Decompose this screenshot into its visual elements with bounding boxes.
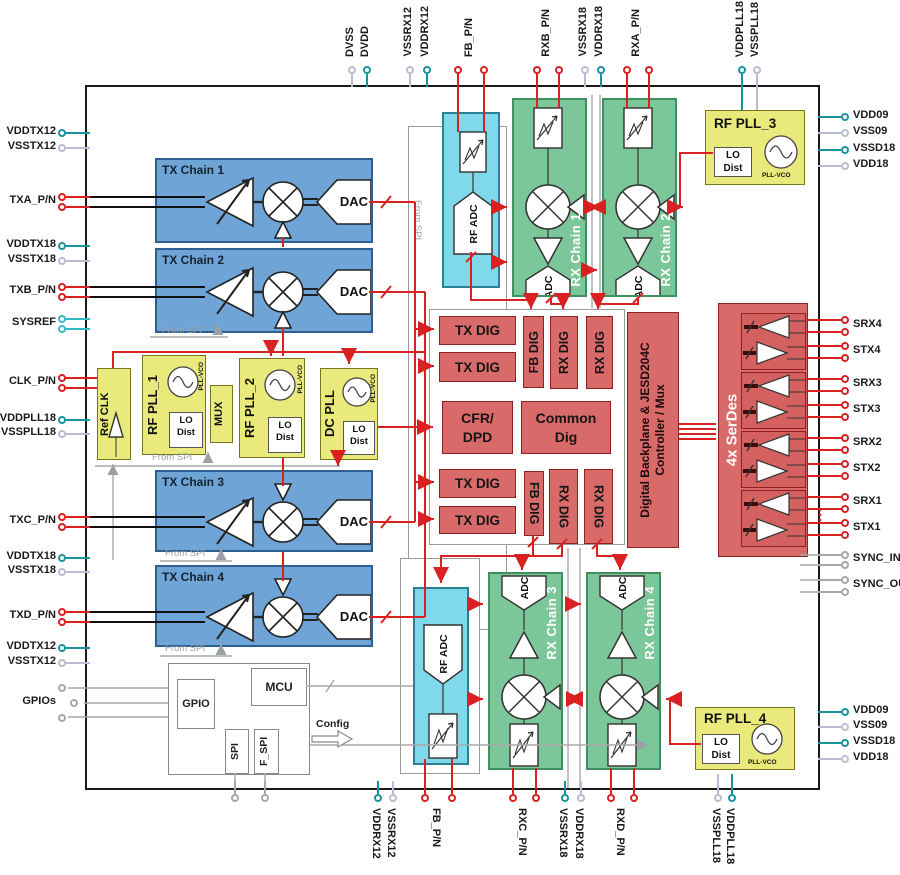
pin-wire (818, 331, 841, 333)
pin-wire (392, 781, 394, 794)
pins-layer: VDDTX12VSSTX12TXA_P/NVDDTX18VSSTX18TXB_P… (0, 0, 900, 875)
pin-wire (66, 662, 90, 664)
pin-wire (66, 286, 90, 288)
pin-circle (533, 66, 541, 74)
pin-label: STX3 (853, 403, 881, 415)
pin-circle (841, 316, 849, 324)
pin-wire (264, 781, 266, 794)
pin-label: DVSS (344, 27, 356, 57)
pin-wire (66, 132, 90, 134)
pin-wire (818, 758, 841, 760)
pin-wire (536, 74, 538, 87)
pin-wire (818, 149, 841, 151)
pin-circle (841, 129, 849, 137)
pin-circle (423, 66, 431, 74)
pin-wire (818, 742, 841, 744)
pin-circle (841, 708, 849, 716)
pin-label: VSSPLL18 (749, 2, 761, 57)
pin-wire (377, 781, 379, 794)
pin-circle (841, 446, 849, 454)
pin-circle (58, 430, 66, 438)
pin-circle (728, 794, 736, 802)
pin-wire (584, 74, 586, 87)
pin-circle (738, 66, 746, 74)
pin-circle (607, 794, 615, 802)
pin-label: STX2 (853, 462, 881, 474)
pin-wire (648, 74, 650, 87)
pin-circle (231, 794, 239, 802)
pin-circle (58, 129, 66, 137)
pin-circle (841, 113, 849, 121)
pin-wire (66, 647, 90, 649)
pin-wire (818, 319, 841, 321)
pin-circle (841, 755, 849, 763)
pin-circle (841, 460, 849, 468)
pin-circle (841, 146, 849, 154)
pin-label: VDD18 (853, 751, 888, 763)
pin-label: VDDRX18 (593, 6, 605, 57)
pin-circle (630, 794, 638, 802)
pin-wire (756, 74, 758, 87)
pin-label: VSSTX18 (8, 564, 56, 576)
pin-wire (66, 611, 90, 613)
pin-circle (841, 413, 849, 421)
pin-wire (66, 557, 90, 559)
pin-wire (818, 463, 841, 465)
pin-wire (818, 404, 841, 406)
pin-circle (58, 374, 66, 382)
pin-wire (66, 419, 90, 421)
pin-wire (818, 357, 841, 359)
pin-label: VSSPLL18 (710, 808, 722, 863)
pin-label: STX4 (853, 344, 881, 356)
pin-label: TXB_P/N (10, 284, 56, 296)
pin-wire (66, 296, 90, 298)
pin-wire (66, 433, 90, 435)
pin-circle (374, 794, 382, 802)
pin-wire (818, 132, 841, 134)
pin-circle (841, 531, 849, 539)
pin-circle (454, 66, 462, 74)
pin-circle (58, 618, 66, 626)
pin-circle (841, 551, 849, 559)
pin-circle (841, 561, 849, 569)
pin-wire (535, 781, 537, 794)
pin-circle (841, 354, 849, 362)
pin-wire (558, 74, 560, 87)
pin-wire (66, 526, 90, 528)
pin-circle (58, 242, 66, 250)
pin-wire (66, 196, 90, 198)
pin-wire (66, 318, 90, 320)
pin-circle (58, 644, 66, 652)
pin-circle (841, 493, 849, 501)
pin-circle (58, 416, 66, 424)
pin-circle (58, 384, 66, 392)
pin-wire (66, 377, 90, 379)
pin-circle (58, 513, 66, 521)
pin-label: FB_P/N (430, 808, 442, 847)
pin-label: SYNC_OUT (853, 578, 900, 590)
pin-circle (841, 401, 849, 409)
pin-wire (818, 390, 841, 392)
pin-wire (351, 74, 353, 87)
pin-label: VDDRX18 (573, 808, 585, 859)
pin-circle (363, 66, 371, 74)
pin-circle (841, 505, 849, 513)
pin-circle (261, 794, 269, 802)
pin-label: VSSTX12 (8, 655, 56, 667)
pin-wire (818, 416, 841, 418)
pin-wire (610, 781, 612, 794)
pin-label: VSSPLL18 (1, 426, 56, 438)
pin-circle (58, 193, 66, 201)
pin-wire (457, 74, 459, 87)
pin-circle (645, 66, 653, 74)
pin-wire (66, 260, 90, 262)
pin-wire (741, 74, 743, 87)
pin-circle (58, 523, 66, 531)
pin-circle (577, 794, 585, 802)
pin-circle (841, 588, 849, 596)
pin-circle (406, 66, 414, 74)
pin-circle (348, 66, 356, 74)
pin-wire (818, 522, 841, 524)
pin-circle (58, 684, 66, 692)
pin-wire (818, 711, 841, 713)
pin-label: VSSRX12 (402, 7, 414, 57)
pin-label: VDDRX12 (370, 808, 382, 859)
pin-wire (818, 508, 841, 510)
pin-label: VDD09 (853, 109, 888, 121)
pin-label: VDDTX18 (6, 550, 56, 562)
pin-label: VDDTX12 (6, 125, 56, 137)
pin-label: SRX1 (853, 495, 882, 507)
pin-circle (58, 257, 66, 265)
pin-label: TXC_P/N (10, 514, 56, 526)
pin-wire (626, 74, 628, 87)
pin-circle (421, 794, 429, 802)
pin-circle (753, 66, 761, 74)
pin-label: VDDRX12 (419, 6, 431, 57)
pin-wire (818, 378, 841, 380)
pin-circle (714, 794, 722, 802)
pin-label: TXD_P/N (10, 609, 56, 621)
pin-circle (58, 608, 66, 616)
pin-label: VSSTX18 (8, 253, 56, 265)
pin-circle (841, 387, 849, 395)
pin-circle (58, 144, 66, 152)
pin-label: RXB_P/N (540, 9, 552, 57)
pin-circle (841, 434, 849, 442)
pin-label: VSSRX18 (577, 7, 589, 57)
pin-label: VDDTX12 (6, 640, 56, 652)
pin-wire (818, 496, 841, 498)
pin-label: VSS09 (853, 719, 887, 731)
pin-circle (58, 568, 66, 576)
pin-wire (731, 781, 733, 794)
pin-wire (818, 449, 841, 451)
pin-circle (58, 315, 66, 323)
pin-wire (818, 345, 841, 347)
pin-circle (58, 554, 66, 562)
pin-circle (841, 162, 849, 170)
pin-circle (70, 699, 78, 707)
pin-wire (600, 74, 602, 87)
pin-wire (818, 534, 841, 536)
pin-wire (66, 328, 90, 330)
pin-label: VDDTX18 (6, 238, 56, 250)
pin-circle (58, 203, 66, 211)
pin-circle (58, 659, 66, 667)
pin-label: SRX3 (853, 377, 882, 389)
pin-label: VDD18 (853, 158, 888, 170)
pin-label: VSSTX12 (8, 140, 56, 152)
pin-circle (841, 472, 849, 480)
pin-wire (66, 387, 90, 389)
pin-label: VSSD18 (853, 142, 895, 154)
pin-wire (424, 781, 426, 794)
pin-circle (480, 66, 488, 74)
pin-wire (66, 245, 90, 247)
pin-circle (841, 375, 849, 383)
pin-circle (623, 66, 631, 74)
pin-wire (818, 564, 841, 566)
pin-label: VSS09 (853, 125, 887, 137)
pin-label: RXA_P/N (630, 9, 642, 57)
pin-wire (633, 781, 635, 794)
pin-wire (717, 781, 719, 794)
rf-transceiver-block-diagram: TX Chain 1 DAC TX Chain 2 (0, 0, 900, 875)
pin-circle (555, 66, 563, 74)
pin-wire (818, 475, 841, 477)
pin-circle (841, 519, 849, 527)
pin-wire (818, 579, 841, 581)
pin-label: RXD_P/N (614, 808, 626, 856)
pin-wire (483, 74, 485, 87)
pin-wire (409, 74, 411, 87)
pin-wire (366, 74, 368, 87)
pin-wire (66, 147, 90, 149)
pin-circle (58, 714, 66, 722)
pin-wire (66, 571, 90, 573)
pin-wire (818, 165, 841, 167)
pin-circle (532, 794, 540, 802)
pin-label: FB_P/N (463, 18, 475, 57)
pin-label: VSSRX12 (385, 808, 397, 858)
pin-wire (564, 781, 566, 794)
pin-label: SRX2 (853, 436, 882, 448)
pin-wire (818, 437, 841, 439)
pin-circle (841, 739, 849, 747)
pin-label: VSSRX18 (557, 808, 569, 858)
pin-wire (818, 726, 841, 728)
pin-wire (818, 554, 841, 556)
pin-wire (512, 781, 514, 794)
pin-circle (561, 794, 569, 802)
pin-wire (818, 591, 841, 593)
pin-circle (597, 66, 605, 74)
pin-label: SYSREF (12, 316, 56, 328)
pin-label: SYNC_IN (853, 552, 900, 564)
pin-circle (841, 342, 849, 350)
pin-circle (448, 794, 456, 802)
pin-wire (580, 781, 582, 794)
pin-circle (841, 723, 849, 731)
pin-circle (509, 794, 517, 802)
pin-wire (234, 781, 236, 794)
pin-circle (389, 794, 397, 802)
pin-circle (841, 328, 849, 336)
pin-circle (58, 325, 66, 333)
pin-label: GPIOs (22, 695, 56, 707)
pin-wire (66, 516, 90, 518)
pin-label: VDDPLL18 (724, 808, 736, 864)
pin-label: SRX4 (853, 318, 882, 330)
pin-label: DVDD (359, 26, 371, 57)
pin-label: TXA_P/N (10, 194, 56, 206)
pin-circle (58, 283, 66, 291)
pin-wire (426, 74, 428, 87)
pin-circle (58, 293, 66, 301)
pin-label: VDD09 (853, 704, 888, 716)
pin-circle (841, 576, 849, 584)
pin-label: VDDPLL18 (0, 412, 56, 424)
pin-label: STX1 (853, 521, 881, 533)
pin-wire (66, 621, 90, 623)
pin-circle (581, 66, 589, 74)
pin-label: VSSD18 (853, 735, 895, 747)
pin-wire (451, 781, 453, 794)
pin-wire (66, 206, 90, 208)
pin-label: VDDPLL18 (734, 1, 746, 57)
pin-wire (818, 116, 841, 118)
pin-label: CLK_P/N (9, 375, 56, 387)
pin-label: RXC_P/N (516, 808, 528, 856)
